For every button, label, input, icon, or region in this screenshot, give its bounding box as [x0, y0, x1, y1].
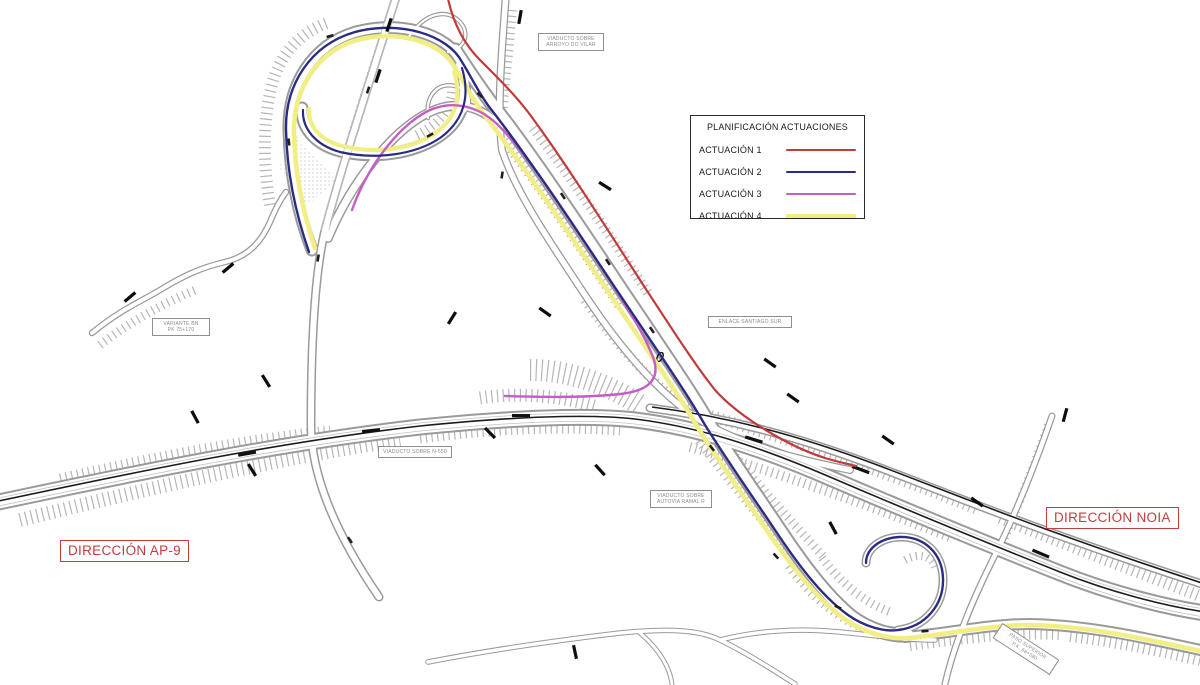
legend-title: PLANIFICACIÓN ACTUACIONES [699, 122, 856, 132]
legend-label: ACTUACIÓN 1 [699, 145, 762, 155]
tick-mark [763, 358, 776, 369]
route-mark [921, 630, 928, 633]
tick-mark [517, 10, 523, 24]
annotation-line: PK 75+170 [155, 327, 207, 333]
direction-label-text: DIRECCIÓN AP-9 [68, 543, 181, 558]
tick-mark [447, 311, 457, 325]
legend-row: ACTUACIÓN 3 [699, 183, 856, 205]
annotation-viaducto-n550: VIADUCTO SOBRE N-550 [378, 446, 452, 458]
annotation-enlace: ENLACE SANTIAGO SUR [708, 316, 792, 328]
road-bottom-spur [640, 633, 672, 684]
roads-group [0, 0, 1200, 684]
legend-row: ACTUACIÓN 4 [699, 205, 856, 227]
centerlines [0, 407, 1200, 612]
direction-label-text: DIRECCIÓN NOIA [1054, 510, 1171, 525]
legend-swatch-actuacion-4 [786, 214, 856, 218]
embankment-hatch [905, 556, 936, 570]
lane-line [0, 413, 1200, 609]
tick-mark [190, 410, 199, 424]
interchange-plan-svg [0, 0, 1200, 685]
annotation-viaducto-ramal: VIADUCTO SOBRE AUTOVÍA RAMAL R [650, 490, 712, 508]
legend: PLANIFICACIÓN ACTUACIONES ACTUACIÓN 1 AC… [690, 115, 865, 219]
plan-drawing: VIADUCTO SOBRE ARROYO DO VILAR VARIANTE … [0, 0, 1200, 685]
tick-mark [598, 181, 612, 191]
road-cores [0, 0, 1200, 684]
route-mark [500, 171, 504, 178]
tick-mark [786, 393, 799, 404]
annotation-line: AUTOVÍA RAMAL R [653, 499, 709, 505]
legend-label: ACTUACIÓN 2 [699, 167, 762, 177]
legend-row: ACTUACIÓN 2 [699, 161, 856, 183]
centerline-main [0, 416, 1200, 612]
legend-label: ACTUACIÓN 4 [699, 211, 762, 221]
tick-mark [828, 521, 837, 535]
tick-mark [572, 645, 578, 659]
chainage-mark [512, 414, 530, 417]
road-core [0, 417, 1200, 613]
direction-label-noia: DIRECCIÓN NOIA [1046, 507, 1179, 529]
road-core [311, 0, 397, 597]
embankment-hatch [530, 370, 640, 405]
road-main-ap9-noia [0, 417, 1200, 613]
tick-mark [594, 464, 606, 477]
legend-swatch-actuacion-2 [786, 171, 856, 174]
annotation-line: VIADUCTO SOBRE N-550 [381, 449, 449, 455]
annotation-variante: VARIANTE BN PK 75+170 [152, 318, 210, 336]
direction-label-ap9: DIRECCIÓN AP-9 [60, 540, 189, 562]
annotation-line: ENLACE SANTIAGO SUR [711, 319, 789, 325]
tick-mark [1062, 408, 1069, 422]
legend-swatch-actuacion-3 [786, 193, 856, 196]
road-straight [311, 0, 397, 597]
tick-mark [261, 374, 271, 388]
road-core [92, 192, 286, 333]
annotation-line: ARROYO DO VILAR [541, 42, 601, 48]
legend-row: ACTUACIÓN 1 [699, 139, 856, 161]
legend-label: ACTUACIÓN 3 [699, 189, 762, 199]
tick-mark [881, 435, 894, 446]
legend-swatch-actuacion-1 [786, 149, 856, 152]
tick-mark [538, 307, 551, 318]
annotation-viaducto-arroyo: VIADUCTO SOBRE ARROYO DO VILAR [538, 33, 604, 51]
route-mark [773, 553, 780, 560]
